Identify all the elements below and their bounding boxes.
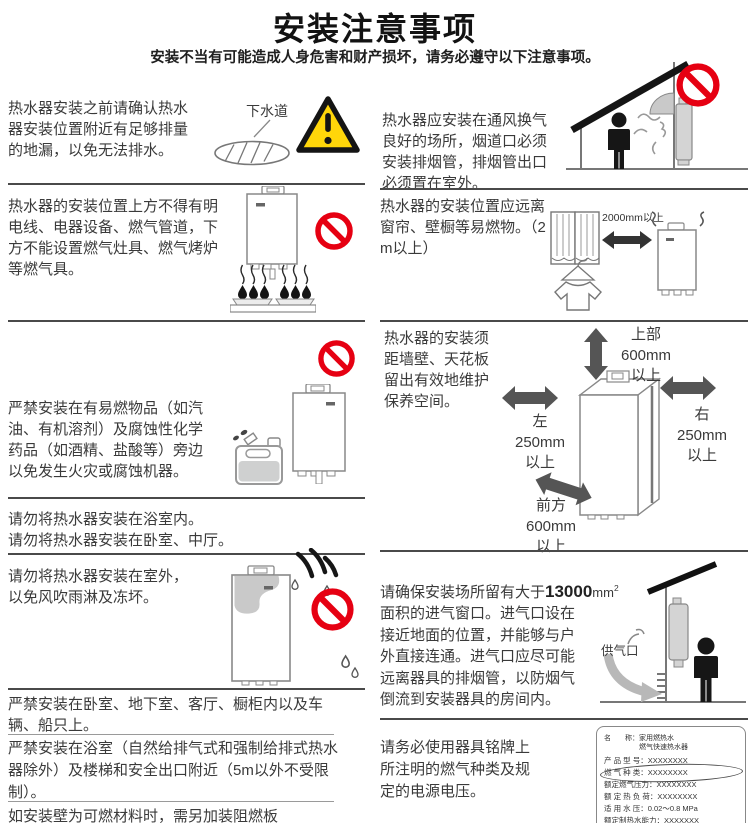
roof xyxy=(648,564,716,592)
curved-arrow xyxy=(608,654,646,692)
clearance-top-label: 上部 600mm 以上 xyxy=(618,325,674,387)
right-section2-text: 热水器的安装位置应远离窗帘、壁橱等易燃物。（2m以上） xyxy=(380,196,548,259)
water-heater-illustration xyxy=(290,384,348,484)
person xyxy=(694,656,718,702)
outdoor-heater xyxy=(669,604,688,660)
burner-flames xyxy=(238,285,311,299)
hood xyxy=(650,93,674,114)
page-title: 安装注意事项 xyxy=(0,4,750,50)
prohibition-icon xyxy=(314,211,354,251)
drain-illustration xyxy=(208,118,300,170)
divider xyxy=(380,550,748,552)
divider xyxy=(8,320,365,322)
left-section3-text: 严禁安装在有易燃物品（如汽油、有机溶剂）及腐蚀性化学药品（如酒精、盐酸等）旁边以… xyxy=(8,398,210,482)
nameplate-row: 燃气快速热水器 xyxy=(604,743,741,752)
right-section5-text: 请务必使用器具铭牌上所注明的燃气种类及规定的电源电压。 xyxy=(380,737,542,803)
outdoor-heater xyxy=(676,104,692,160)
manual-page: 安装注意事项 安装不当有可能造成人身危害和财产损坏，请务必遵守以下注意事项。 热… xyxy=(0,0,750,823)
nameplate-row: 额定制热水能力：XXXXXXX xyxy=(604,815,741,823)
right-section3-text: 热水器的安装须距墙壁、天花板留出有效地维护保养空间。 xyxy=(384,328,496,412)
left-section1-text: 热水器安装之前请确认热水器安装位置附近有足够排量的地漏，以免无法排水。 xyxy=(8,98,196,161)
divider xyxy=(8,183,365,185)
divider xyxy=(380,718,748,720)
left-section7-text: 严禁安装在浴室（自然给排气式和强制给排式热水器除外）及楼梯和安全出口附近（5m以… xyxy=(8,738,344,804)
house-illustration xyxy=(562,58,750,172)
left-section6-text: 严禁安装在卧室、地下室、客厅、橱柜内以及车辆、船只上。 xyxy=(8,694,340,736)
air-inlet-illustration xyxy=(598,556,748,704)
clearance-front-label: 前方 600mm 以上 xyxy=(518,496,584,558)
divider-thin xyxy=(8,801,334,802)
clearance-left-label: 左 250mm 以上 xyxy=(508,412,572,474)
left-section4-line1: 请勿将热水器安装在浴室内。 xyxy=(8,509,348,530)
nameplate-row: 适 用 水 压：0.02～0.8 MPa xyxy=(604,803,741,815)
jerry-can-illustration xyxy=(228,428,286,486)
right-section1-text: 热水器应安装在通风换气良好的场所，烟道口必须安装排烟管，排烟管出口必须置在室外。 xyxy=(382,110,554,194)
divider xyxy=(8,688,365,690)
prohibition-icon xyxy=(310,587,355,632)
curtain-heater-illustration xyxy=(548,206,710,313)
prohibition-icon xyxy=(317,339,356,378)
double-arrow xyxy=(602,231,652,249)
left-section2-text: 热水器的安装位置上方不得有明电线、电器设备、燃气管道，下方不能设置燃气灶具、燃气… xyxy=(8,196,226,280)
divider xyxy=(380,188,748,190)
nameplate-row: 名 称：家用燃热水 xyxy=(604,734,741,743)
left-section8-text: 如安装壁为可燃材料时，需另加装阻燃板 xyxy=(8,806,348,823)
left-section5-text: 请勿将热水器安装在室外，以免风吹雨淋及冻坏。 xyxy=(8,566,200,608)
heater-over-stove-illustration xyxy=(230,186,316,313)
hanger xyxy=(562,266,594,280)
divider xyxy=(8,497,365,499)
t-shirt xyxy=(555,282,601,310)
water-heater xyxy=(658,230,696,290)
warning-triangle-icon xyxy=(296,95,360,155)
person xyxy=(608,129,630,169)
inlet-label: 供气口 xyxy=(601,640,639,659)
divider-thin xyxy=(8,734,334,735)
right-section4-text: 请确保安装场所留有大于13000mm2 面积的进气窗口。进气口设在接近地面的位置… xyxy=(380,578,605,711)
nameplate-row: 额 定 热 负 荷：XXXXXXXX xyxy=(604,791,741,803)
rain-streaks xyxy=(298,550,336,576)
clearance-right-label: 右 250mm 以上 xyxy=(670,405,734,467)
prohibition-icon xyxy=(675,62,721,108)
smoke xyxy=(634,114,665,154)
